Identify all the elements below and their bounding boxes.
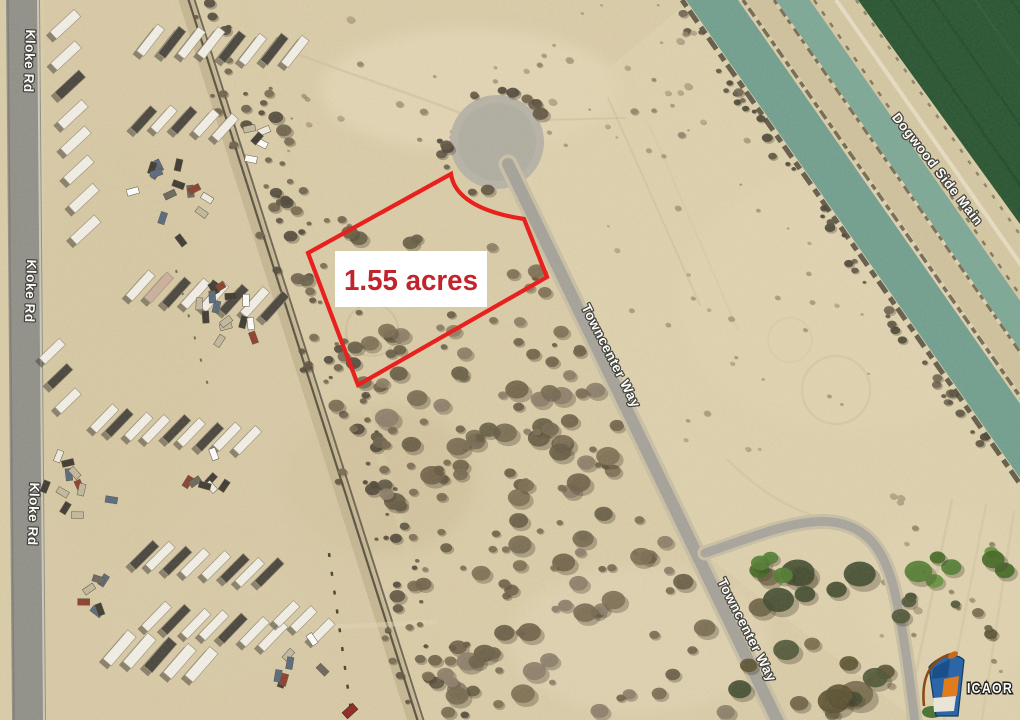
kloke-rd-label-2: Kloke Rd — [22, 259, 39, 323]
parcel-area-label: 1.55 acres — [344, 265, 478, 297]
kloke-rd-label-1: Kloke Rd — [21, 29, 38, 93]
icaor-watermark-text: ICAOR — [967, 680, 1013, 697]
kloke-rd-label-3: Kloke Rd — [25, 482, 42, 546]
photo-grain-light — [0, 0, 1020, 720]
satellite-map-image: 1.55 acres Kloke Rd Kloke Rd Kloke Rd To… — [0, 0, 1020, 720]
satellite-map-canvas: 1.55 acres Kloke Rd Kloke Rd Kloke Rd To… — [0, 0, 1020, 720]
